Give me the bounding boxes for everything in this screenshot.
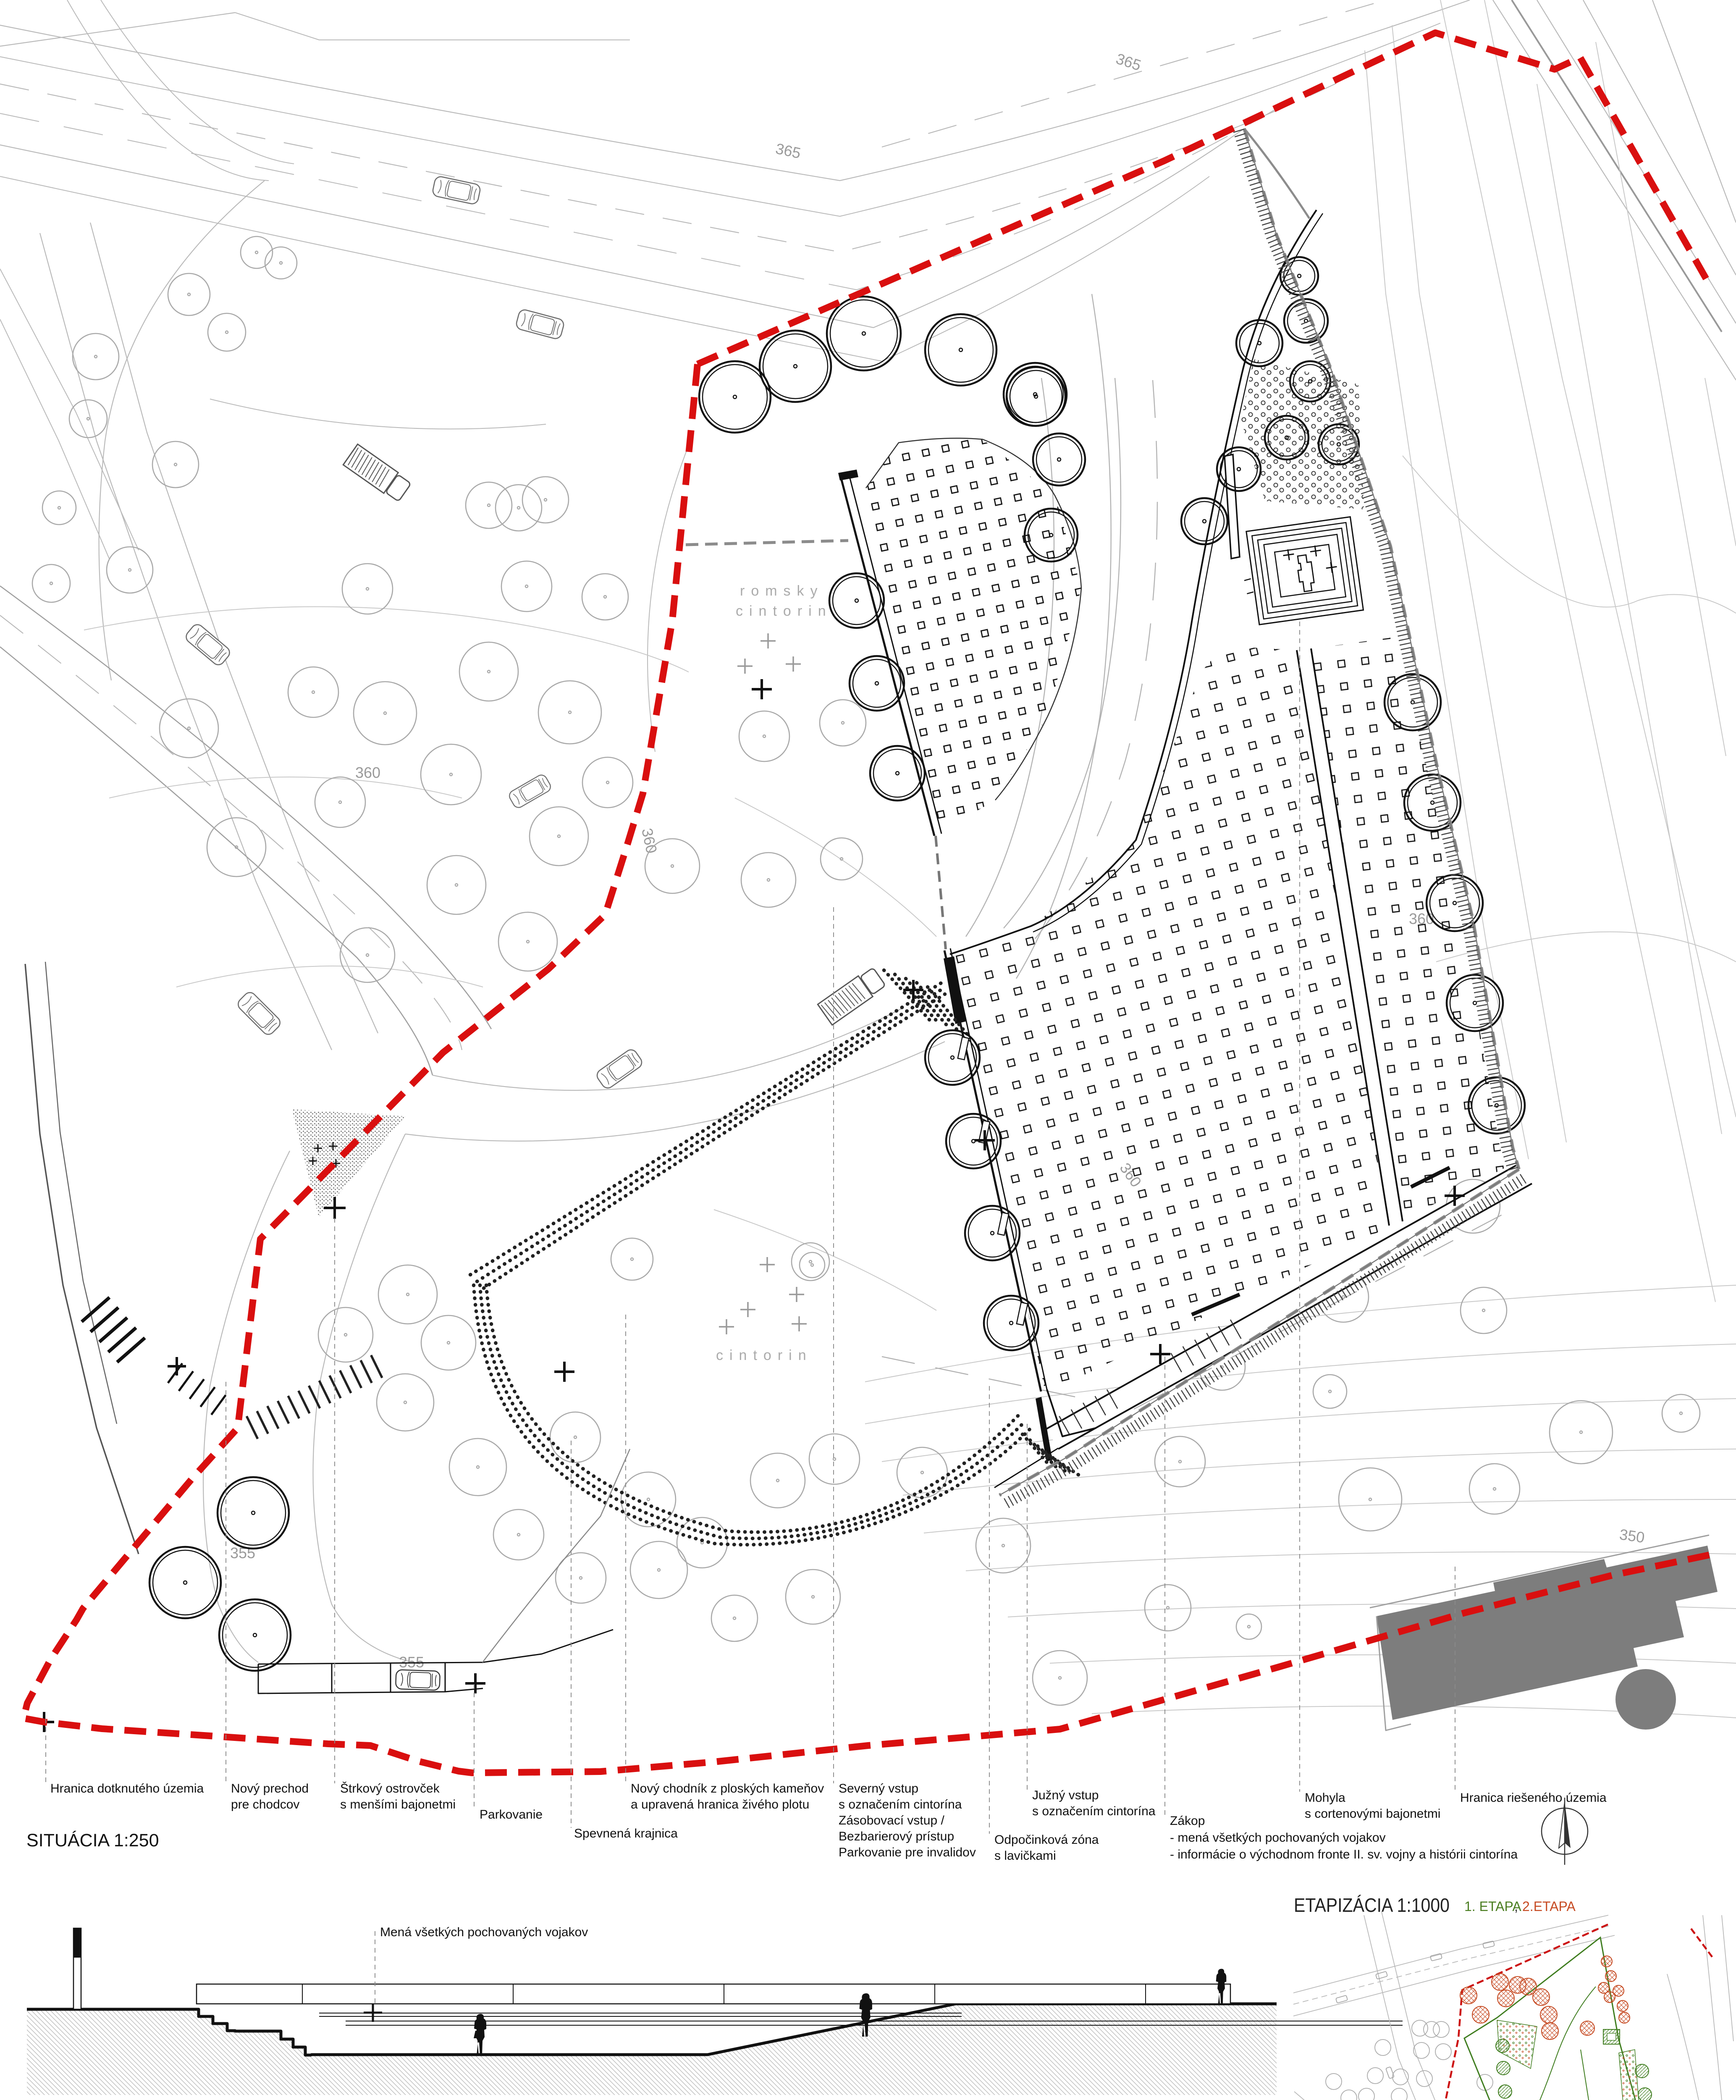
svg-text:Bezbarierový prístup: Bezbarierový prístup	[839, 1830, 954, 1843]
svg-text:- mená všetkých pochovaných vo: - mená všetkých pochovaných vojakov	[1170, 1831, 1386, 1845]
svg-text:,: ,	[1514, 1899, 1518, 1914]
svg-text:1. ETAPA: 1. ETAPA	[1464, 1899, 1521, 1914]
svg-text:Spevnená krajnica: Spevnená krajnica	[574, 1827, 678, 1840]
svg-text:s označením cintorína: s označením cintorína	[839, 1798, 962, 1811]
svg-text:Štrkový ostrovček: Štrkový ostrovček	[340, 1781, 440, 1795]
svg-text:s lavičkami: s lavičkami	[994, 1849, 1056, 1863]
svg-text:Parkovanie pre invalidov: Parkovanie pre invalidov	[839, 1845, 976, 1859]
svg-text:Odpočinková zóna: Odpočinková zóna	[994, 1833, 1099, 1847]
svg-text:350: 350	[1618, 1525, 1646, 1546]
svg-text:cintorin: cintorin	[716, 1347, 813, 1363]
svg-text:Hranica riešeného územia: Hranica riešeného územia	[1460, 1791, 1607, 1805]
svg-text:Zásobovací vstup /: Zásobovací vstup /	[839, 1814, 944, 1827]
svg-text:Mená všetkých pochovaných voja: Mená všetkých pochovaných vojakov	[380, 1925, 588, 1939]
svg-text:s menšími bajonetmi: s menšími bajonetmi	[340, 1798, 456, 1811]
svg-text:Nový prechod: Nový prechod	[231, 1782, 309, 1795]
svg-text:Parkovanie: Parkovanie	[480, 1808, 543, 1822]
svg-text:Zákop: Zákop	[1170, 1814, 1205, 1828]
svg-text:Nový chodník z ploských kameňo: Nový chodník z ploských kameňov	[631, 1782, 824, 1795]
svg-text:a upravená hranica živého plot: a upravená hranica živého plotu	[631, 1798, 809, 1811]
svg-text:s cortenovými bajonetmi: s cortenovými bajonetmi	[1305, 1807, 1440, 1821]
svg-text:Hranica dotknutého územia: Hranica dotknutého územia	[50, 1782, 204, 1795]
svg-text:s označením cintorína: s označením cintorína	[1032, 1804, 1156, 1818]
svg-text:ETAPIZÁCIA 1:1000: ETAPIZÁCIA 1:1000	[1294, 1894, 1450, 1916]
svg-text:2.ETAPA: 2.ETAPA	[1522, 1899, 1576, 1914]
svg-text:360: 360	[355, 764, 380, 781]
svg-text:pre chodcov: pre chodcov	[231, 1798, 299, 1811]
svg-text:Mohyla: Mohyla	[1305, 1791, 1345, 1805]
svg-text:SITUÁCIA 1:250: SITUÁCIA 1:250	[26, 1830, 159, 1851]
svg-text:romsky: romsky	[740, 583, 824, 599]
svg-text:cintorin: cintorin	[736, 603, 832, 619]
svg-text:- informácie o východnom front: - informácie o východnom fronte II. sv. …	[1170, 1848, 1518, 1861]
svg-text:355: 355	[399, 1654, 424, 1671]
svg-text:Južný vstup: Južný vstup	[1032, 1788, 1099, 1802]
svg-text:Severný vstup: Severný vstup	[839, 1782, 918, 1795]
